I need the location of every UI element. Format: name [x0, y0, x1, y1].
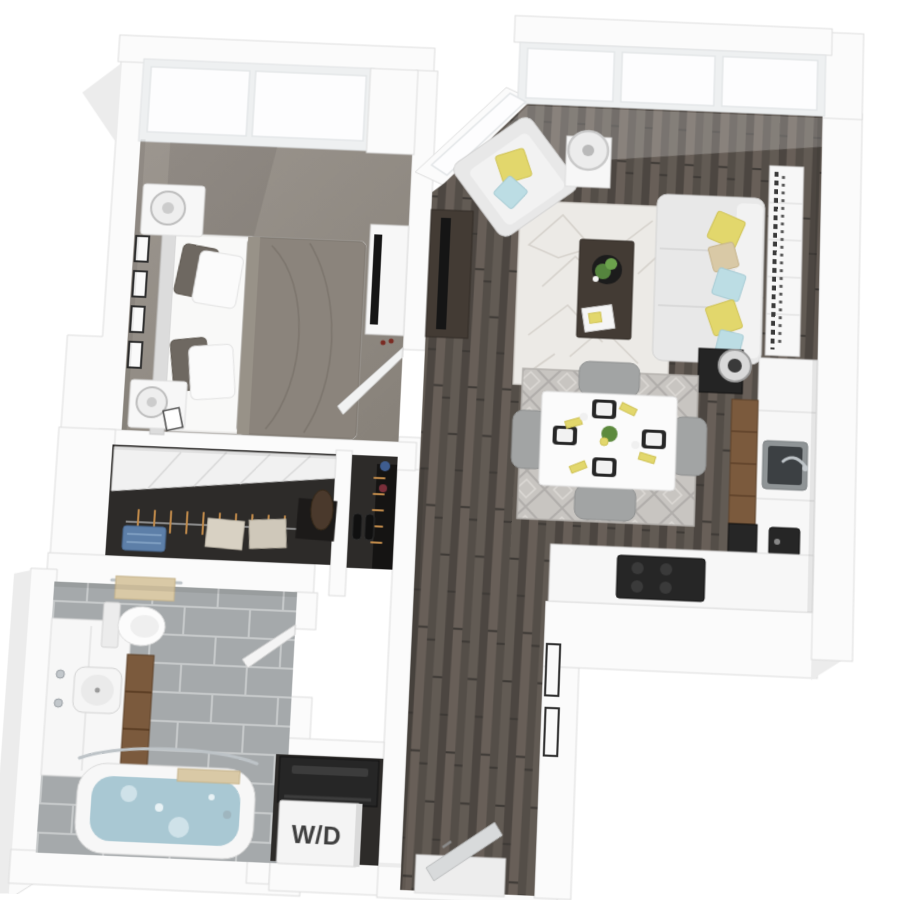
coffee-maker: [769, 527, 800, 557]
living-window-pane: [526, 48, 615, 101]
faucet-handle: [54, 699, 63, 708]
shoes: [364, 514, 374, 541]
closet-right: [346, 455, 397, 570]
centerpiece: [600, 437, 608, 445]
wd-closet: W/D: [270, 754, 383, 868]
bedroom: [119, 59, 418, 445]
kitchen-bottom-wall: [543, 601, 819, 679]
bookshelf: [765, 166, 803, 357]
coffee-table: [577, 239, 634, 339]
cooktop: [616, 555, 705, 602]
wd-label: W/D: [291, 821, 342, 852]
storage-box: [249, 519, 286, 548]
closet: [105, 444, 340, 565]
kitchen-sink: [762, 440, 809, 490]
bedroom-corner-wall: [366, 68, 418, 154]
hall-frame: [545, 644, 560, 696]
bath-water: [88, 775, 241, 847]
shoes: [352, 513, 362, 540]
folded-jeans: [122, 526, 166, 552]
floorplan-canvas: W/D: [0, 0, 900, 900]
photo-frame: [163, 408, 183, 431]
magazine-art: [589, 312, 602, 323]
washer-dryer-box: W/D: [276, 800, 362, 867]
living-window-pane: [722, 57, 818, 111]
bedroom-window-pane: [147, 67, 250, 136]
bed-pillow: [188, 344, 235, 400]
dining-chair: [574, 485, 636, 522]
dining-chair: [578, 361, 640, 397]
bathroom: [36, 573, 298, 863]
kitchen-cabinets-wood: [729, 399, 758, 524]
dining-area: [509, 358, 709, 526]
tub-tray: [177, 769, 240, 784]
hall-frame: [544, 708, 559, 756]
bedroom-window-pane: [252, 71, 366, 141]
balcony-ledge-wedge: [79, 62, 121, 142]
floorplan-3d-render: W/D: [0, 0, 900, 900]
bed-pillow: [191, 250, 244, 309]
sofa: [652, 194, 765, 365]
storage-box: [205, 518, 245, 550]
dryer-unit: [278, 756, 380, 806]
faucet-handle: [56, 670, 65, 679]
living-window-pane: [621, 52, 715, 105]
